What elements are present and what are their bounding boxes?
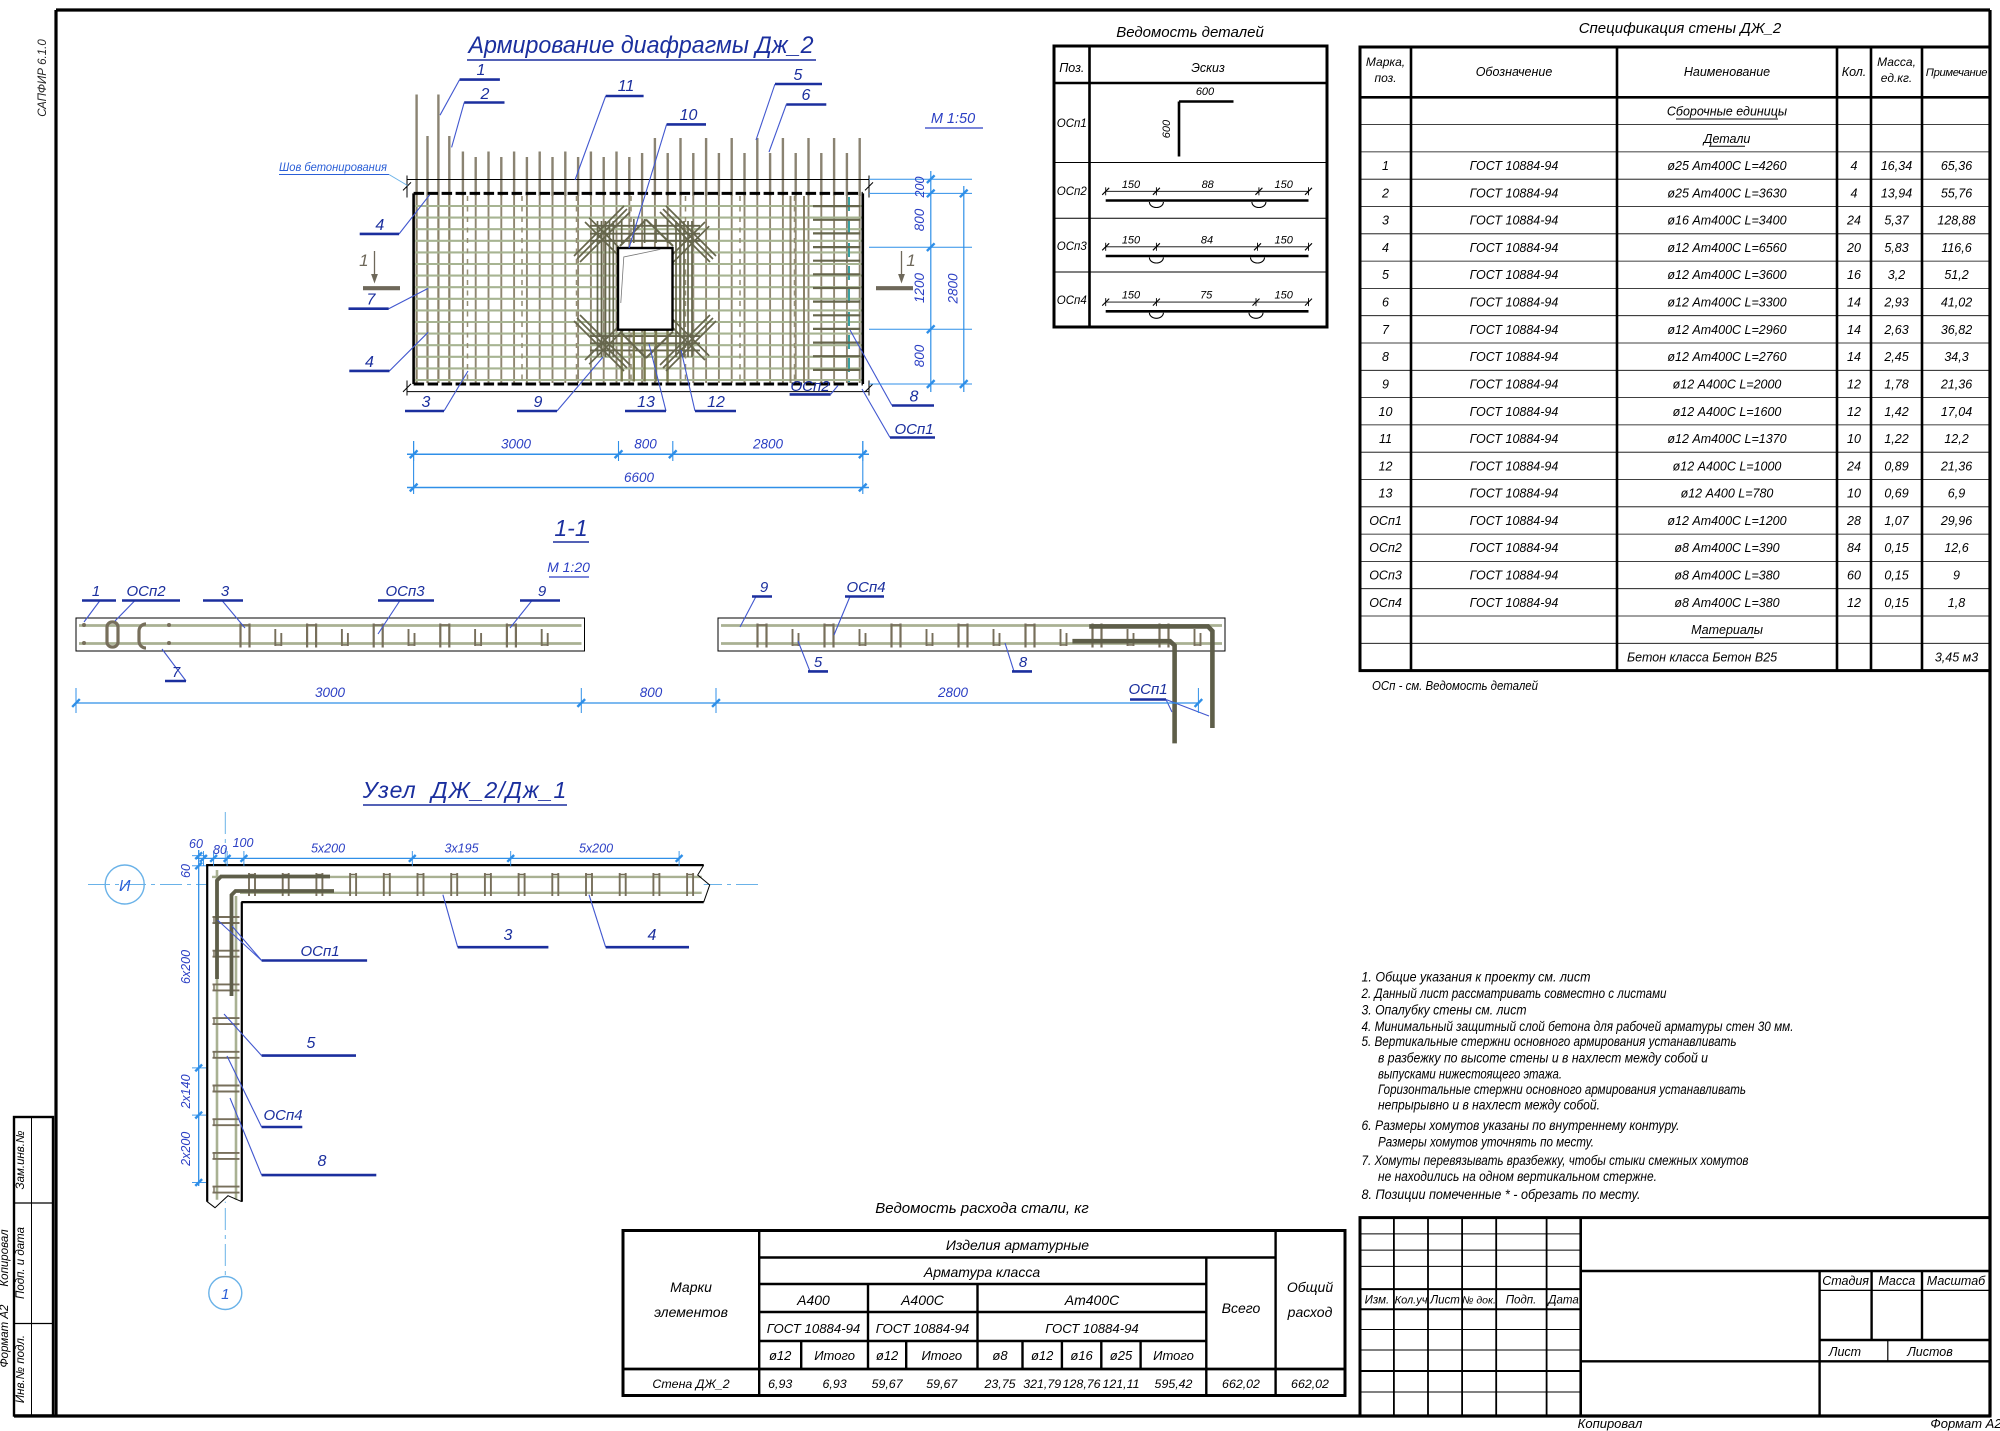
svg-text:Лист: Лист: [1828, 1345, 1861, 1359]
svg-text:12: 12: [1847, 596, 1861, 610]
svg-text:Армирование диафрагмы Дж_2: Армирование диафрагмы Дж_2: [467, 32, 814, 59]
svg-text:800: 800: [912, 208, 927, 231]
svg-text:5: 5: [794, 67, 803, 84]
svg-text:21,36: 21,36: [1940, 459, 1972, 473]
svg-text:5: 5: [1382, 268, 1389, 282]
svg-text:ОСп - см. Ведомость деталей: ОСп - см. Ведомость деталей: [1372, 678, 1539, 693]
svg-text:14: 14: [1847, 323, 1861, 337]
svg-text:0,15: 0,15: [1884, 569, 1908, 583]
svg-text:Спецификация стены ДЖ_2: Спецификация стены ДЖ_2: [1579, 20, 1782, 37]
svg-text:Формат А2: Формат А2: [1930, 1416, 2000, 1431]
svg-text:9: 9: [534, 394, 543, 411]
svg-text:ø12: ø12: [1031, 1348, 1054, 1363]
svg-text:8: 8: [1382, 350, 1389, 364]
svg-text:128,76: 128,76: [1063, 1377, 1101, 1391]
svg-text:5,83: 5,83: [1884, 241, 1908, 255]
svg-text:М 1:20: М 1:20: [547, 559, 590, 575]
svg-text:не находились на одном вертика: не находились на одном вертикальном стер…: [1378, 1169, 1657, 1184]
svg-text:Стадия: Стадия: [1822, 1274, 1869, 1288]
svg-text:М 1:50: М 1:50: [931, 111, 975, 127]
svg-text:1. Общие указания к проекту см: 1. Общие указания к проекту см. лист: [1362, 970, 1591, 985]
svg-text:Марки: Марки: [670, 1279, 712, 1295]
svg-text:3х195: 3х195: [444, 842, 478, 856]
svg-text:ГОСТ 10884-94: ГОСТ 10884-94: [876, 1321, 970, 1336]
svg-text:№ док.: № док.: [1462, 1295, 1496, 1307]
svg-text:ГОСТ 10884-94: ГОСТ 10884-94: [1470, 541, 1559, 555]
svg-text:Масса: Масса: [1878, 1274, 1915, 1288]
svg-text:3000: 3000: [315, 685, 346, 700]
svg-text:ОСп4: ОСп4: [1057, 295, 1087, 307]
svg-text:150: 150: [1275, 179, 1294, 191]
svg-text:150: 150: [1122, 179, 1141, 191]
svg-text:800: 800: [912, 344, 927, 367]
svg-text:7: 7: [172, 664, 181, 681]
svg-text:20: 20: [1846, 241, 1861, 255]
svg-text:А400С: А400С: [900, 1292, 945, 1308]
svg-text:6: 6: [802, 87, 811, 104]
svg-text:ГОСТ 10884-94: ГОСТ 10884-94: [1470, 432, 1559, 446]
svg-text:13,94: 13,94: [1881, 186, 1912, 200]
svg-text:Арматура класса: Арматура класса: [923, 1264, 1040, 1280]
svg-text:116,6: 116,6: [1941, 241, 1971, 255]
svg-text:1,22: 1,22: [1884, 432, 1908, 446]
svg-text:Ведомость расхода стали, кг: Ведомость расхода стали, кг: [875, 1200, 1089, 1217]
svg-text:10: 10: [1847, 432, 1861, 446]
svg-text:7: 7: [1382, 323, 1390, 337]
svg-text:элементов: элементов: [654, 1304, 728, 1320]
svg-text:1: 1: [477, 62, 486, 79]
svg-text:11: 11: [1379, 432, 1392, 446]
svg-text:3: 3: [422, 394, 431, 411]
svg-text:Эскиз: Эскиз: [1191, 61, 1225, 75]
svg-text:Зам.инв.№: Зам.инв.№: [15, 1130, 27, 1189]
svg-text:6,93: 6,93: [768, 1377, 792, 1391]
svg-text:16: 16: [1847, 268, 1861, 282]
svg-text:ø12 Ат400С L=3300: ø12 Ат400С L=3300: [1667, 296, 1786, 310]
svg-text:Примечание: Примечание: [1926, 67, 1988, 79]
svg-text:4: 4: [1382, 241, 1389, 255]
svg-text:ГОСТ 10884-94: ГОСТ 10884-94: [1470, 214, 1559, 228]
svg-text:ОСп1: ОСп1: [1057, 118, 1087, 130]
svg-text:Подп. и дата: Подп. и дата: [15, 1227, 27, 1299]
svg-text:ø8 Ат400С L=390: ø8 Ат400С L=390: [1674, 541, 1779, 555]
svg-text:59,67: 59,67: [926, 1377, 958, 1391]
svg-text:ø12 Ат400С L=6560: ø12 Ат400С L=6560: [1667, 241, 1786, 255]
svg-text:2: 2: [1381, 186, 1389, 200]
svg-text:ГОСТ 10884-94: ГОСТ 10884-94: [1470, 569, 1559, 583]
svg-text:Наименование: Наименование: [1684, 65, 1770, 79]
svg-text:13: 13: [1379, 487, 1393, 501]
svg-text:1,07: 1,07: [1884, 514, 1909, 528]
svg-text:ø16: ø16: [1070, 1348, 1093, 1363]
svg-text:ОСп1: ОСп1: [1369, 514, 1402, 528]
svg-text:4: 4: [365, 354, 374, 371]
svg-text:6600: 6600: [624, 470, 655, 485]
svg-text:60: 60: [179, 864, 193, 878]
svg-text:ГОСТ 10884-94: ГОСТ 10884-94: [1470, 159, 1559, 173]
svg-text:0,15: 0,15: [1884, 541, 1908, 555]
svg-text:ОСп2: ОСп2: [126, 583, 166, 600]
svg-text:Размеры хомутов уточнять по ме: Размеры хомутов уточнять по месту.: [1378, 1135, 1594, 1150]
svg-text:ГОСТ 10884-94: ГОСТ 10884-94: [1470, 268, 1559, 282]
svg-text:1-1: 1-1: [554, 515, 587, 541]
svg-text:ø12 Ат400С L=3600: ø12 Ат400С L=3600: [1667, 268, 1786, 282]
svg-text:Марка,: Марка,: [1366, 55, 1405, 69]
svg-text:600: 600: [1196, 86, 1215, 98]
svg-text:150: 150: [1122, 234, 1141, 246]
svg-text:1,42: 1,42: [1884, 405, 1908, 419]
svg-text:Лист: Лист: [1429, 1295, 1460, 1307]
svg-text:ø12 А400С L=2000: ø12 А400С L=2000: [1673, 377, 1782, 391]
svg-text:1: 1: [221, 1286, 229, 1303]
svg-text:ГОСТ 10884-94: ГОСТ 10884-94: [1470, 241, 1559, 255]
svg-text:4: 4: [648, 927, 657, 944]
svg-text:12,6: 12,6: [1944, 541, 1968, 555]
svg-text:ø25: ø25: [1110, 1348, 1133, 1363]
svg-text:29,96: 29,96: [1940, 514, 1972, 528]
svg-text:ø12 Ат400С L=2960: ø12 Ат400С L=2960: [1667, 323, 1786, 337]
svg-text:поз.: поз.: [1374, 71, 1396, 85]
svg-text:ГОСТ 10884-94: ГОСТ 10884-94: [767, 1321, 861, 1336]
svg-text:2х140: 2х140: [179, 1074, 193, 1109]
svg-text:ø12 А400С L=1600: ø12 А400С L=1600: [1673, 405, 1782, 419]
svg-text:5: 5: [307, 1035, 316, 1052]
svg-text:14: 14: [1847, 350, 1861, 364]
svg-text:8: 8: [318, 1153, 327, 1170]
svg-text:12: 12: [1379, 459, 1393, 473]
svg-text:ОСп1: ОСп1: [300, 943, 339, 960]
svg-text:12: 12: [1847, 405, 1861, 419]
svg-text:Узел ДЖ_2/Дж_1: Узел ДЖ_2/Дж_1: [362, 777, 568, 803]
svg-text:ГОСТ 10884-94: ГОСТ 10884-94: [1470, 514, 1559, 528]
svg-text:16,34: 16,34: [1881, 159, 1912, 173]
svg-text:И: И: [119, 878, 131, 895]
svg-text:2. Данный лист рассматривать с: 2. Данный лист рассматривать совместно с…: [1361, 986, 1667, 1001]
svg-text:2: 2: [480, 86, 490, 103]
svg-text:0,15: 0,15: [1884, 596, 1908, 610]
svg-text:1: 1: [1382, 159, 1389, 173]
svg-text:ГОСТ 10884-94: ГОСТ 10884-94: [1470, 596, 1559, 610]
svg-text:60: 60: [1847, 569, 1861, 583]
svg-text:Ведомость деталей: Ведомость деталей: [1116, 24, 1264, 41]
svg-text:ОСп2: ОСп2: [1057, 186, 1088, 198]
svg-text:ø8: ø8: [992, 1348, 1008, 1363]
svg-text:60: 60: [189, 837, 203, 851]
svg-text:12: 12: [707, 394, 725, 411]
svg-text:100: 100: [233, 836, 254, 850]
svg-text:ОСп1: ОСп1: [1128, 681, 1167, 698]
svg-text:ø12 Ат400С L=1200: ø12 Ат400С L=1200: [1667, 514, 1786, 528]
svg-text:121,11: 121,11: [1103, 1377, 1140, 1391]
svg-text:Стена ДЖ_2: Стена ДЖ_2: [652, 1377, 729, 1391]
svg-text:150: 150: [1275, 234, 1294, 246]
svg-text:ГОСТ 10884-94: ГОСТ 10884-94: [1470, 186, 1559, 200]
svg-text:662,02: 662,02: [1291, 1377, 1329, 1391]
svg-text:3: 3: [504, 927, 513, 944]
svg-text:595,42: 595,42: [1155, 1377, 1193, 1391]
svg-text:7: 7: [367, 292, 377, 309]
svg-text:80: 80: [213, 843, 227, 857]
svg-text:Формат А2: Формат А2: [0, 1304, 11, 1368]
svg-text:ø12 Ат400С L=1370: ø12 Ат400С L=1370: [1667, 432, 1786, 446]
svg-text:5х200: 5х200: [579, 842, 613, 856]
svg-text:Копировал: Копировал: [0, 1229, 11, 1287]
svg-text:5х200: 5х200: [311, 842, 345, 856]
svg-text:Бетон класса Бетон В25: Бетон класса Бетон В25: [1627, 650, 1777, 664]
svg-text:ø25 Ат400С L=4260: ø25 Ат400С L=4260: [1667, 159, 1786, 173]
svg-text:84: 84: [1201, 234, 1213, 246]
svg-text:Листов: Листов: [1906, 1345, 1953, 1359]
svg-text:1: 1: [906, 251, 915, 270]
svg-text:3. Опалубку стены см. лист: 3. Опалубку стены см. лист: [1362, 1003, 1527, 1018]
svg-text:800: 800: [640, 685, 663, 700]
svg-text:ГОСТ 10884-94: ГОСТ 10884-94: [1470, 459, 1559, 473]
svg-text:Инв.№ подл.: Инв.№ подл.: [15, 1335, 27, 1403]
svg-text:ОСп3: ОСп3: [1369, 569, 1402, 583]
svg-text:6,9: 6,9: [1948, 487, 1965, 501]
svg-text:6,93: 6,93: [823, 1377, 847, 1391]
svg-text:9: 9: [760, 579, 769, 596]
svg-text:12: 12: [1847, 377, 1861, 391]
svg-text:Подп.: Подп.: [1506, 1295, 1537, 1307]
svg-text:Масштаб: Масштаб: [1927, 1274, 1986, 1288]
svg-text:28: 28: [1846, 514, 1861, 528]
svg-text:11: 11: [618, 78, 635, 95]
svg-text:150: 150: [1122, 290, 1141, 302]
svg-text:34,3: 34,3: [1944, 350, 1968, 364]
svg-text:ГОСТ 10884-94: ГОСТ 10884-94: [1470, 487, 1559, 501]
svg-text:ø8 Ат400С L=380: ø8 Ат400С L=380: [1674, 596, 1779, 610]
svg-text:Дата: Дата: [1546, 1295, 1578, 1307]
svg-text:А400: А400: [796, 1292, 830, 1308]
svg-text:12,2: 12,2: [1944, 432, 1968, 446]
svg-text:ОСп4: ОСп4: [1369, 596, 1402, 610]
svg-text:4: 4: [375, 217, 384, 234]
svg-text:3: 3: [221, 583, 230, 600]
svg-text:5: 5: [814, 654, 823, 671]
svg-text:321,79: 321,79: [1023, 1377, 1061, 1391]
svg-text:Изделия арматурные: Изделия арматурные: [946, 1237, 1089, 1253]
svg-text:1: 1: [359, 251, 368, 270]
svg-text:Копировал: Копировал: [1578, 1416, 1643, 1431]
svg-text:9: 9: [538, 583, 547, 600]
svg-text:Шов бетонирования: Шов бетонирования: [279, 160, 387, 174]
svg-text:9: 9: [1382, 377, 1389, 391]
svg-text:0,69: 0,69: [1884, 487, 1908, 501]
svg-text:150: 150: [1275, 290, 1294, 302]
svg-text:24: 24: [1846, 214, 1861, 228]
svg-text:6х200: 6х200: [179, 950, 193, 984]
svg-text:3000: 3000: [501, 437, 532, 452]
svg-text:7. Хомуты перевязывать вразбеж: 7. Хомуты перевязывать вразбежку, чтобы …: [1362, 1153, 1749, 1168]
svg-text:ГОСТ 10884-94: ГОСТ 10884-94: [1470, 405, 1559, 419]
svg-text:1,8: 1,8: [1948, 596, 1965, 610]
svg-text:ОСп3: ОСп3: [1057, 241, 1088, 253]
svg-text:расход: расход: [1287, 1304, 1333, 1320]
svg-text:ø8 Ат400С L=380: ø8 Ат400С L=380: [1674, 569, 1779, 583]
svg-text:8. Позиции помеченные * - обре: 8. Позиции помеченные * - обрезать по ме…: [1362, 1187, 1641, 1202]
svg-text:55,76: 55,76: [1941, 186, 1972, 200]
svg-text:ГОСТ 10884-94: ГОСТ 10884-94: [1045, 1321, 1139, 1336]
svg-text:в разбежку по высоте стены и в: в разбежку по высоте стены и в нахлест м…: [1378, 1051, 1708, 1066]
svg-text:4: 4: [1851, 159, 1858, 173]
svg-text:65,36: 65,36: [1941, 159, 1972, 173]
svg-text:662,02: 662,02: [1222, 1377, 1260, 1391]
svg-text:Поз.: Поз.: [1059, 61, 1084, 75]
svg-text:Детали: Детали: [1702, 132, 1751, 146]
svg-text:Кол.: Кол.: [1842, 65, 1867, 79]
svg-text:Итого: Итого: [814, 1348, 855, 1363]
svg-text:2,45: 2,45: [1883, 350, 1908, 364]
svg-text:Итого: Итого: [921, 1348, 962, 1363]
svg-text:Масса,: Масса,: [1877, 55, 1916, 69]
svg-text:Общий: Общий: [1287, 1279, 1333, 1295]
svg-text:Материалы: Материалы: [1691, 623, 1763, 637]
svg-text:выпусками нижестоящего этажа.: выпусками нижестоящего этажа.: [1378, 1067, 1562, 1082]
svg-text:Всего: Всего: [1222, 1300, 1261, 1316]
svg-text:ø12 А400С L=1000: ø12 А400С L=1000: [1673, 459, 1782, 473]
svg-text:2800: 2800: [937, 685, 969, 700]
svg-text:ГОСТ 10884-94: ГОСТ 10884-94: [1470, 296, 1559, 310]
svg-text:ОСп2: ОСп2: [1369, 541, 1402, 555]
svg-text:ГОСТ 10884-94: ГОСТ 10884-94: [1470, 350, 1559, 364]
svg-text:2х200: 2х200: [179, 1132, 193, 1167]
svg-text:600: 600: [1161, 119, 1173, 138]
svg-text:ø12: ø12: [876, 1348, 899, 1363]
svg-text:5,37: 5,37: [1884, 214, 1909, 228]
svg-text:3,45 м3: 3,45 м3: [1935, 650, 1978, 664]
svg-text:Ат400С: Ат400С: [1064, 1292, 1120, 1308]
svg-text:5. Вертикальные стержни основн: 5. Вертикальные стержни основного армиро…: [1362, 1034, 1737, 1049]
svg-text:ОСп4: ОСп4: [846, 579, 885, 596]
svg-text:128,88: 128,88: [1937, 214, 1975, 228]
svg-text:13: 13: [637, 394, 655, 411]
svg-text:3: 3: [1382, 214, 1389, 228]
svg-text:ОСп1: ОСп1: [894, 421, 933, 438]
svg-text:ø12 Ат400С L=2760: ø12 Ат400С L=2760: [1667, 350, 1786, 364]
svg-text:Сборочные единицы: Сборочные единицы: [1667, 105, 1787, 119]
svg-text:36,82: 36,82: [1941, 323, 1972, 337]
svg-text:23,75: 23,75: [983, 1377, 1015, 1391]
svg-text:1,78: 1,78: [1884, 377, 1908, 391]
svg-text:САПФИР 6.1.0: САПФИР 6.1.0: [37, 39, 49, 117]
svg-text:4. Минимальный защитный слой б: 4. Минимальный защитный слой бетона для …: [1362, 1019, 1794, 1034]
svg-text:88: 88: [1202, 179, 1215, 191]
svg-text:17,04: 17,04: [1941, 405, 1972, 419]
svg-text:ø25 Ат400С L=3630: ø25 Ат400С L=3630: [1667, 186, 1786, 200]
svg-text:14: 14: [1847, 296, 1861, 310]
svg-text:ø12: ø12: [769, 1348, 792, 1363]
svg-text:59,67: 59,67: [872, 1377, 904, 1391]
svg-text:ø16 Ат400С L=3400: ø16 Ат400С L=3400: [1667, 214, 1786, 228]
svg-text:2,63: 2,63: [1883, 323, 1908, 337]
svg-text:2800: 2800: [946, 273, 961, 305]
svg-text:10: 10: [680, 107, 698, 124]
svg-text:8: 8: [910, 389, 919, 406]
svg-text:Итого: Итого: [1153, 1348, 1194, 1363]
svg-text:ОСп3: ОСп3: [385, 583, 425, 600]
svg-text:ОСп4: ОСп4: [263, 1107, 302, 1124]
svg-text:9: 9: [1953, 569, 1960, 583]
svg-text:41,02: 41,02: [1941, 296, 1972, 310]
svg-text:ОСп2: ОСп2: [790, 378, 830, 395]
svg-text:24: 24: [1846, 459, 1861, 473]
svg-text:ГОСТ 10884-94: ГОСТ 10884-94: [1470, 377, 1559, 391]
svg-text:Кол.уч: Кол.уч: [1395, 1295, 1428, 1307]
svg-text:6. Размеры хомутов указаны по: 6. Размеры хомутов указаны по внутреннем…: [1362, 1118, 1680, 1133]
svg-text:4: 4: [1851, 186, 1858, 200]
svg-text:2,93: 2,93: [1883, 296, 1908, 310]
svg-text:Изм.: Изм.: [1365, 1295, 1390, 1307]
svg-text:Обозначение: Обозначение: [1476, 65, 1553, 79]
svg-text:3,2: 3,2: [1888, 268, 1905, 282]
svg-text:21,36: 21,36: [1940, 377, 1972, 391]
svg-text:10: 10: [1847, 487, 1861, 501]
svg-text:6: 6: [1382, 296, 1389, 310]
svg-text:75: 75: [1200, 290, 1213, 302]
svg-text:1: 1: [92, 583, 100, 600]
svg-text:непрырывно и в нахлест между с: непрырывно и в нахлест между собой.: [1378, 1098, 1600, 1113]
svg-text:ГОСТ 10884-94: ГОСТ 10884-94: [1470, 323, 1559, 337]
svg-text:8: 8: [1019, 654, 1028, 671]
svg-text:84: 84: [1847, 541, 1861, 555]
svg-text:200: 200: [913, 177, 927, 199]
svg-text:ø12 А400 L=780: ø12 А400 L=780: [1681, 487, 1774, 501]
svg-text:ед.кг.: ед.кг.: [1881, 71, 1912, 85]
svg-text:0,89: 0,89: [1884, 459, 1908, 473]
svg-text:1200: 1200: [912, 272, 927, 303]
svg-text:10: 10: [1379, 405, 1393, 419]
svg-text:Горизонтальные стержни основно: Горизонтальные стержни основного армиров…: [1378, 1082, 1746, 1097]
svg-text:51,2: 51,2: [1944, 268, 1968, 282]
svg-text:2800: 2800: [752, 437, 784, 452]
svg-text:800: 800: [634, 437, 657, 452]
